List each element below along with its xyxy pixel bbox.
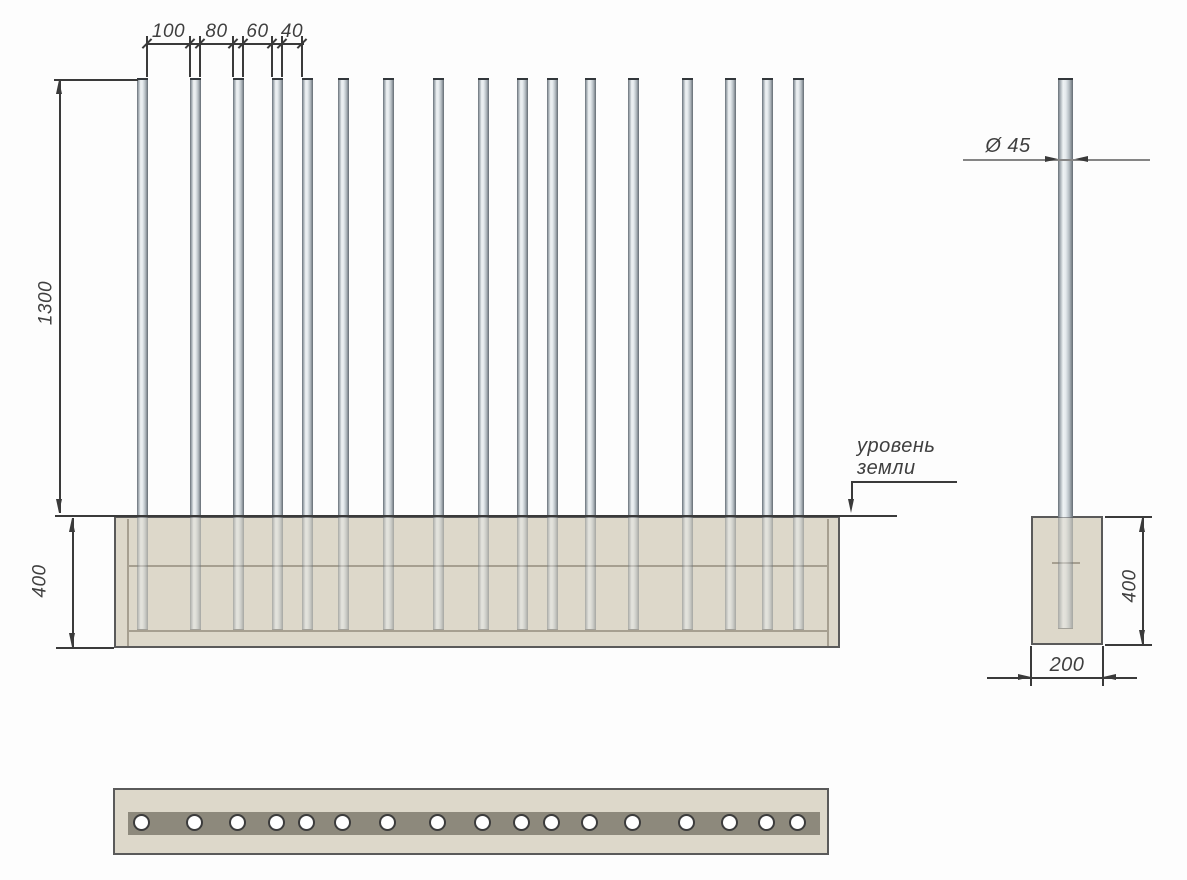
front-post [383,78,394,517]
front-post [547,78,558,517]
front-post-embedded [383,517,394,630]
plan-post-hole [789,814,806,831]
side-post-embedded [1058,517,1073,629]
side-embed-dim-line [1142,518,1144,645]
front-post [338,78,349,517]
ground-leader-arrow [848,499,854,513]
front-post-embedded [338,517,349,630]
ground-leader-line-horizontal [852,481,957,483]
diameter-dim-label: Ø 45 [973,136,1043,156]
height-dim-line [59,80,61,513]
front-post-embedded [585,517,596,630]
ground-level-label-line1: уровень [857,436,935,458]
front-post [233,78,244,517]
side-embed-dim-arrow-bottom [1139,630,1145,644]
plan-post-hole [474,814,491,831]
front-embed-dim-arrow-bottom [69,633,75,647]
plan-post-hole [678,814,695,831]
side-width-dim-extension-right [1102,646,1104,686]
front-post [272,78,283,517]
side-width-dim-label: 200 [1032,655,1102,675]
front-embed-dim-label: 400 [31,536,50,626]
plan-post-hole [429,814,446,831]
front-post [137,78,148,517]
front-post [682,78,693,517]
front-post [725,78,736,517]
plan-post-hole [229,814,246,831]
front-embed-dim-line [72,518,74,647]
front-post-embedded [233,517,244,630]
side-width-dim-arrow-left [1018,674,1031,680]
plan-post-hole [624,814,641,831]
side-embed-dim-label: 400 [1121,541,1140,631]
front-foundation-inner-line-right [827,519,829,646]
height-dim-extension-top [54,79,138,81]
front-post [478,78,489,517]
front-post-embedded [517,517,528,630]
front-post [793,78,804,517]
front-post [628,78,639,517]
front-post-embedded [190,517,201,630]
front-post-embedded [478,517,489,630]
side-embed-dim-extension-bottom [1105,644,1152,646]
front-embed-dim-arrow-top [69,518,75,532]
front-post-embedded [433,517,444,630]
front-post-embedded [682,517,693,630]
plan-post-hole [581,814,598,831]
front-post-embedded [762,517,773,630]
height-dim-label: 1300 [37,258,56,348]
spacing-dim-label: 40 [257,22,327,41]
ground-level-label-line2: земли [857,458,916,480]
front-embed-dim-extension-bottom [56,647,114,649]
plan-post-hole [186,814,203,831]
plan-post-hole [543,814,560,831]
front-post [762,78,773,517]
plan-post-hole [758,814,775,831]
front-foundation-inner-line-bottom [127,630,828,632]
front-post-embedded [272,517,283,630]
plan-post-hole [268,814,285,831]
front-post [517,78,528,517]
front-foundation-inner-line-left [127,519,129,646]
front-post [433,78,444,517]
side-width-dim-arrow-right [1103,674,1116,680]
front-post-embedded [628,517,639,630]
plan-post-hole [721,814,738,831]
plan-post-hole [133,814,150,831]
side-post [1058,78,1073,517]
ground-line [55,515,897,517]
drawing-canvas: 100806040 1300 400 уровень земли Ø 45 40… [0,0,1187,880]
front-post [585,78,596,517]
ground-leader-line-vertical [851,481,853,501]
height-dim-arrow-bottom [56,499,62,513]
diameter-dim-arrow-right [1075,156,1088,162]
side-embed-dim-arrow-top [1139,518,1145,532]
plan-post-hole [513,814,530,831]
front-post-embedded [547,517,558,630]
front-post [302,78,313,517]
plan-post-hole [298,814,315,831]
plan-post-hole [379,814,396,831]
diameter-dim-arrow-left [1045,156,1058,162]
height-dim-arrow-top [56,80,62,94]
front-post-embedded [793,517,804,630]
front-post-embedded [725,517,736,630]
front-post-embedded [302,517,313,630]
front-post-embedded [137,517,148,630]
plan-post-hole [334,814,351,831]
front-post [190,78,201,517]
